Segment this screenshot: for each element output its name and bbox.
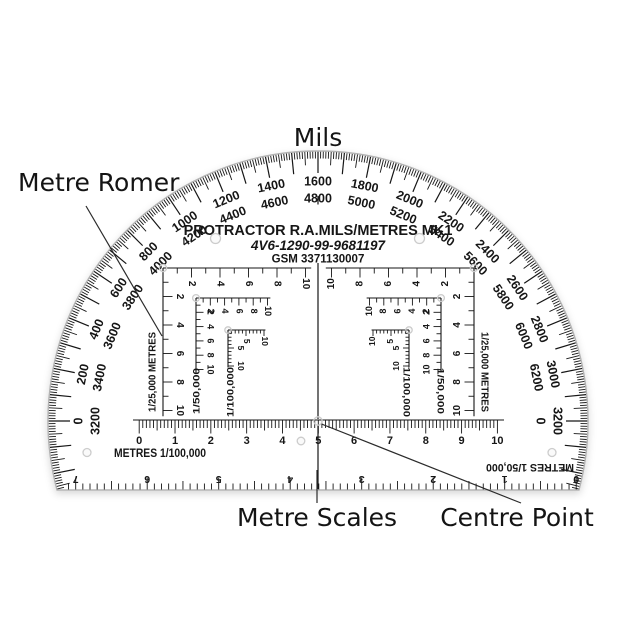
bottom-ruler-number: 0 [136, 435, 142, 447]
nsn-number: 4V6-1290-99-9681197 [250, 238, 387, 253]
romer-number: 6 [383, 280, 394, 286]
bottom-ruler-number: 9 [459, 435, 465, 447]
caption-metre-scales: Metre Scales [237, 503, 397, 532]
romer-number: 5 [391, 345, 401, 350]
romer-number: 6 [392, 309, 402, 314]
product-image: 0320020034004003600600380080040001000420… [0, 0, 640, 640]
hole [314, 417, 322, 425]
hole [297, 437, 305, 445]
edge-ruler-label: METRES 1/50,000 [486, 461, 574, 473]
hole [193, 295, 200, 302]
romer-number: 4 [206, 324, 216, 329]
romer-number: 6 [243, 281, 254, 287]
romer-scale-label: 1/50,000 [434, 368, 445, 414]
hole [438, 295, 445, 302]
edge-ruler-number: 2 [430, 473, 436, 485]
bottom-ruler-number: 2 [208, 435, 214, 447]
romer-number: 10 [260, 337, 270, 347]
hole [225, 327, 231, 333]
hole [470, 264, 477, 271]
edge-ruler-number: 5 [216, 473, 222, 485]
bottom-ruler-number: 4 [279, 435, 286, 447]
romer-number: 6 [235, 309, 245, 314]
bottom-ruler-number: 3 [244, 435, 250, 447]
romer-scale-label: 1/100,000 [400, 367, 411, 417]
bottom-ruler-number: 10 [491, 435, 503, 447]
hole [211, 234, 221, 244]
romer-number: 10 [326, 278, 337, 290]
romer-number: 4 [220, 309, 230, 314]
hole [159, 264, 166, 271]
romer-number: 2 [440, 280, 451, 286]
romer-number: 5 [385, 339, 395, 344]
edge-ruler-number: 3 [359, 473, 365, 485]
hole [406, 327, 412, 333]
mils-outer-label: 0 [71, 417, 85, 424]
caption-mils: Mils [294, 123, 343, 152]
romer-number: 10 [206, 364, 216, 374]
bottom-ruler-number: 8 [423, 435, 429, 447]
mils-inner-label: 0 [534, 418, 548, 425]
romer-scale-label: 1/100,000 [226, 367, 237, 417]
romer-number: 10 [421, 364, 431, 374]
mils-outer-label: 3200 [551, 407, 565, 435]
romer-number: 8 [378, 309, 388, 314]
protractor: 0320020034004003600600380080040001000420… [0, 0, 640, 640]
romer-number: 8 [452, 379, 463, 385]
romer-number: 8 [271, 281, 282, 287]
romer-scale-label: 1/50,000 [192, 368, 203, 414]
romer-number: 4 [452, 322, 463, 328]
romer-number: 6 [174, 351, 185, 357]
hole [83, 449, 91, 457]
romer-number: 10 [452, 405, 463, 417]
romer-number: 4 [407, 309, 417, 314]
romer-number: 6 [421, 338, 431, 343]
romer-number: 2 [174, 294, 185, 300]
romer-number: 5 [242, 339, 252, 344]
bottom-ruler-number: 7 [387, 435, 393, 447]
title-line-1: PROTRACTOR R.A.MILS/METRES MK1 [184, 223, 453, 239]
romer-number: 10 [300, 278, 311, 290]
romer-scale-label: 1/25,000 METRES [478, 332, 489, 412]
romer-number: 8 [355, 280, 366, 286]
romer-number: 6 [452, 350, 463, 356]
romer-number: 4 [214, 281, 225, 287]
romer-number: 8 [421, 353, 431, 358]
romer-number: 10 [263, 306, 273, 316]
romer-number: 10 [364, 306, 374, 316]
caption-centre-point: Centre Point [440, 503, 594, 532]
edge-ruler-number: 4 [287, 473, 293, 485]
romer-number: 4 [174, 322, 185, 328]
mils-inner-label: 3200 [88, 407, 102, 435]
romer-number: 8 [174, 379, 185, 385]
romer-number: 2 [452, 293, 463, 299]
romer-number: 6 [206, 338, 216, 343]
edge-ruler-number: 1 [502, 473, 508, 485]
edge-ruler-number: 7 [73, 473, 79, 485]
romer-number: 5 [236, 346, 246, 351]
romer-number: 2 [186, 281, 197, 287]
romer-number: 10 [236, 361, 246, 371]
mils-outer-label: 1600 [304, 174, 332, 188]
romer-number: 10 [367, 336, 377, 346]
romer-number: 10 [174, 405, 185, 417]
hole [415, 234, 425, 244]
romer-number: 4 [412, 280, 423, 286]
romer-number: 10 [391, 361, 401, 371]
romer-number: 8 [249, 309, 259, 314]
edge-ruler-number: 0 [573, 473, 579, 485]
bottom-ruler-number: 1 [172, 435, 178, 447]
romer-number: 4 [421, 324, 431, 329]
romer-number: 8 [206, 353, 216, 358]
edge-ruler-number: 6 [144, 473, 150, 485]
romer-number: 2 [206, 310, 216, 315]
romer-number: 2 [421, 310, 431, 315]
hole [548, 449, 556, 457]
caption-metre-romer: Metre Romer [18, 168, 179, 197]
bottom-ruler-label: METRES 1/100,000 [114, 448, 206, 460]
romer-scale-label: 1/25,000 METRES [148, 332, 159, 412]
